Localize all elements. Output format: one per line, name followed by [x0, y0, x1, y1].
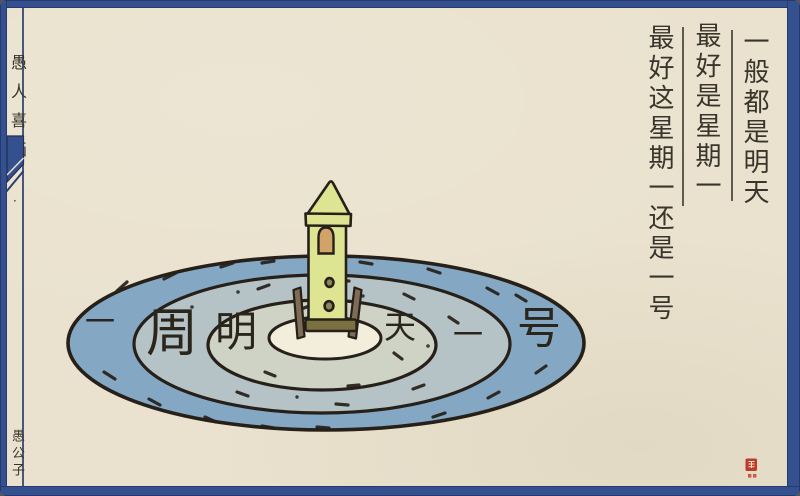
ring-label-middle-right: 一	[453, 318, 483, 353]
rocket-base-plate	[306, 320, 357, 332]
rocket-nose-cone	[307, 181, 350, 215]
comic-page: 一 号 周 一 明 天 一般都是明天 最好是星期一 最好这星期一还是一号 愚人喜…	[0, 0, 800, 496]
rocket-porthole-top	[326, 278, 334, 287]
ring-label-inner-right: 天	[384, 308, 416, 346]
frame-border-left	[0, 0, 7, 496]
ring-label-middle-left: 周	[146, 304, 198, 364]
caption-column-2: 最好是星期一	[692, 22, 719, 202]
caption-divider-1	[731, 30, 733, 201]
frame-border-top	[0, 0, 800, 8]
ring-label-outer-right: 号	[517, 303, 561, 354]
artist-seal-icon	[744, 457, 762, 483]
frame-border-bottom	[0, 486, 800, 496]
frame-border-right	[787, 0, 800, 496]
artist-signature: 愚公子	[10, 429, 23, 480]
rocket-porthole-bottom	[325, 301, 334, 311]
caption-divider-2	[682, 27, 684, 206]
caption-column-1: 一般都是明天	[740, 28, 767, 208]
rocket-collar	[306, 214, 352, 227]
rocket-window	[319, 228, 334, 254]
ring-label-outer-left: 一	[85, 305, 115, 340]
ring-label-inner-left: 明	[215, 307, 257, 356]
caption-column-3: 最好这星期一还是一号	[645, 24, 672, 324]
illustration-svg: 一 号 周 一 明 天	[0, 0, 800, 496]
ribbon-ornament-icon	[5, 131, 25, 197]
